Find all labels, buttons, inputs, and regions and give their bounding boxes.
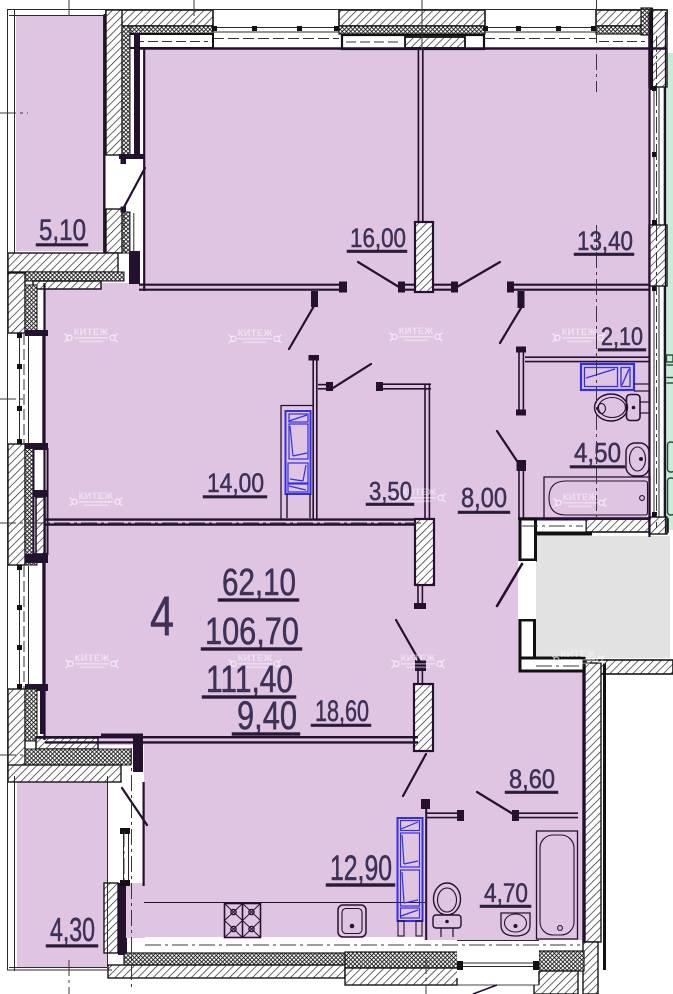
svg-text:4,50: 4,50 bbox=[574, 437, 621, 468]
svg-text:3,50: 3,50 bbox=[369, 476, 412, 506]
svg-text:КИТЕЖ: КИТЕЖ bbox=[238, 328, 273, 339]
svg-text:62,10: 62,10 bbox=[222, 562, 296, 604]
svg-text:4,70: 4,70 bbox=[484, 878, 528, 908]
svg-text:4: 4 bbox=[150, 584, 174, 647]
svg-text:КИТЕЖ: КИТЕЖ bbox=[401, 653, 436, 664]
svg-text:КИТЕЖ: КИТЕЖ bbox=[561, 649, 596, 660]
svg-text:12,90: 12,90 bbox=[330, 849, 392, 888]
svg-text:5,10: 5,10 bbox=[39, 214, 86, 247]
svg-text:8,60: 8,60 bbox=[509, 764, 555, 794]
svg-text:14,00: 14,00 bbox=[207, 468, 264, 498]
svg-text:106,70: 106,70 bbox=[205, 611, 299, 653]
svg-text:КИТЕЖ: КИТЕЖ bbox=[562, 327, 597, 338]
svg-text:КИТЕЖ: КИТЕЖ bbox=[563, 492, 598, 503]
svg-text:КИТЕЖ: КИТЕЖ bbox=[79, 491, 114, 502]
svg-text:КИТЕЖ: КИТЕЖ bbox=[75, 653, 110, 664]
svg-text:16,00: 16,00 bbox=[350, 223, 406, 253]
svg-text:13,40: 13,40 bbox=[577, 226, 633, 256]
svg-text:КИТЕЖ: КИТЕЖ bbox=[399, 326, 434, 337]
svg-text:4,30: 4,30 bbox=[50, 911, 95, 948]
svg-text:9,40: 9,40 bbox=[237, 694, 297, 738]
svg-text:8,00: 8,00 bbox=[461, 482, 507, 513]
svg-text:18,60: 18,60 bbox=[315, 695, 369, 728]
svg-text:КИТЕЖ: КИТЕЖ bbox=[74, 327, 109, 338]
svg-text:2,10: 2,10 bbox=[601, 323, 643, 351]
